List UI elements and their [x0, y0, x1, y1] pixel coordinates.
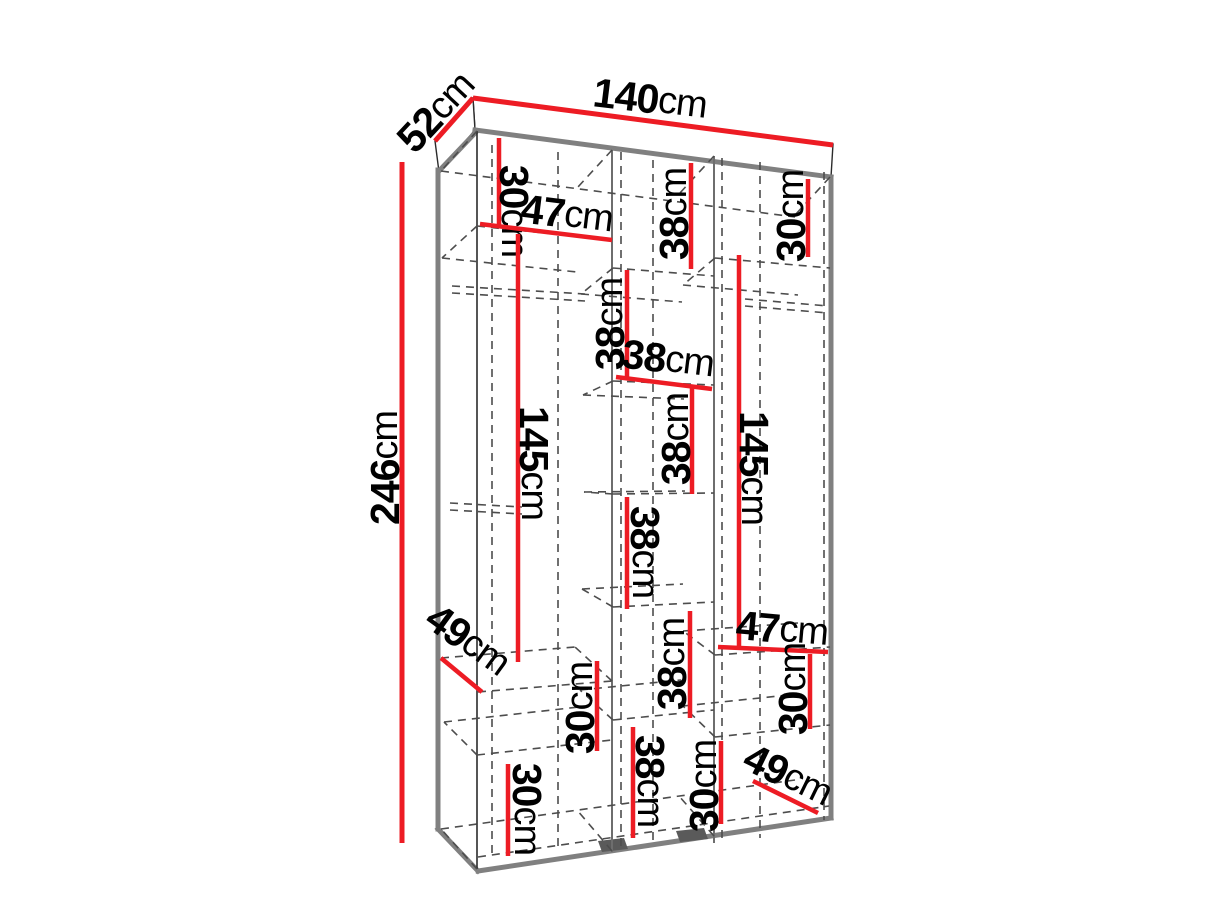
mid-shelf-5-front	[613, 710, 714, 720]
left-rail2-bottom	[450, 510, 522, 514]
dimension-label-middle-38-4: 38cm	[622, 506, 668, 598]
dimension-label-right-mid-30: 30cm	[770, 643, 816, 735]
dimension-label-left-bottom-30: 30cm	[504, 763, 550, 855]
dimension-middle-38-6: 38cm	[627, 727, 673, 838]
dimension-label-left-hanging-145: 145cm	[511, 406, 557, 520]
dimension-right-top-30: 30cm	[768, 170, 814, 262]
right-shelf-1-diag	[683, 258, 715, 285]
left-shelf-1-diag	[442, 226, 477, 258]
dimension-middle-38-3: 38cm	[653, 387, 699, 494]
mid-shelf-4-diag-l	[582, 589, 613, 607]
dimension-right-bottom-30: 30cm	[681, 740, 727, 832]
dimension-middle-38-1: 38cm	[651, 163, 697, 269]
dimension-middle-38-width: 38cm	[616, 331, 717, 389]
dimension-left-bottom-30: 30cm	[504, 763, 550, 856]
left-shelf-1-back	[442, 258, 577, 272]
top-depth-diag-p1	[577, 150, 612, 188]
dimension-middle-38-4: 38cm	[622, 497, 668, 609]
mid-shelf-2-diag-l	[583, 381, 613, 395]
dimension-right-mid-30: 30cm	[770, 643, 816, 735]
dimension-left-depth-49: 49cm	[417, 594, 519, 692]
mid-shelf-3-back	[584, 491, 685, 492]
dimension-label-left-depth-49: 49cm	[417, 594, 519, 685]
dimension-label-middle-38-6: 38cm	[627, 735, 673, 827]
dimension-middle-38-5: 38cm	[649, 611, 695, 718]
dimension-label-middle-38-1: 38cm	[651, 168, 697, 260]
dimension-overall-height-246: 246cm	[362, 162, 408, 843]
dimension-annotations: 140cm52cm246cm30cm47cm145cm49cm30cm30cm3…	[362, 63, 840, 856]
right-rail-bottom	[745, 306, 828, 313]
right-rail-top	[745, 299, 828, 306]
dimension-right-hanging-145: 145cm	[731, 255, 777, 649]
left-shelf-3-diag	[444, 722, 477, 755]
dimension-label-middle-38-5: 38cm	[649, 618, 695, 710]
bottom-back-edge	[441, 780, 795, 829]
dimension-left-mid-30: 30cm	[557, 661, 603, 754]
left-rail2-top	[450, 503, 522, 507]
dimension-diagram: 140cm52cm246cm30cm47cm145cm49cm30cm30cm3…	[0, 0, 1214, 911]
mid-shelf-3-front	[613, 493, 714, 494]
dimension-label-right-hanging-145: 145cm	[731, 411, 777, 525]
dimension-label-overall-height-246: 246cm	[362, 411, 408, 525]
dimension-label-right-bottom-30: 30cm	[681, 740, 727, 832]
bottom-left-bevel-edge	[438, 829, 478, 871]
dimension-label-left-mid-30: 30cm	[557, 662, 603, 754]
wardrobe-drawing: 140cm52cm246cm30cm47cm145cm49cm30cm30cm3…	[0, 0, 1214, 911]
dimension-label-middle-38-3: 38cm	[653, 393, 699, 485]
dimension-label-right-top-30: 30cm	[768, 170, 814, 262]
